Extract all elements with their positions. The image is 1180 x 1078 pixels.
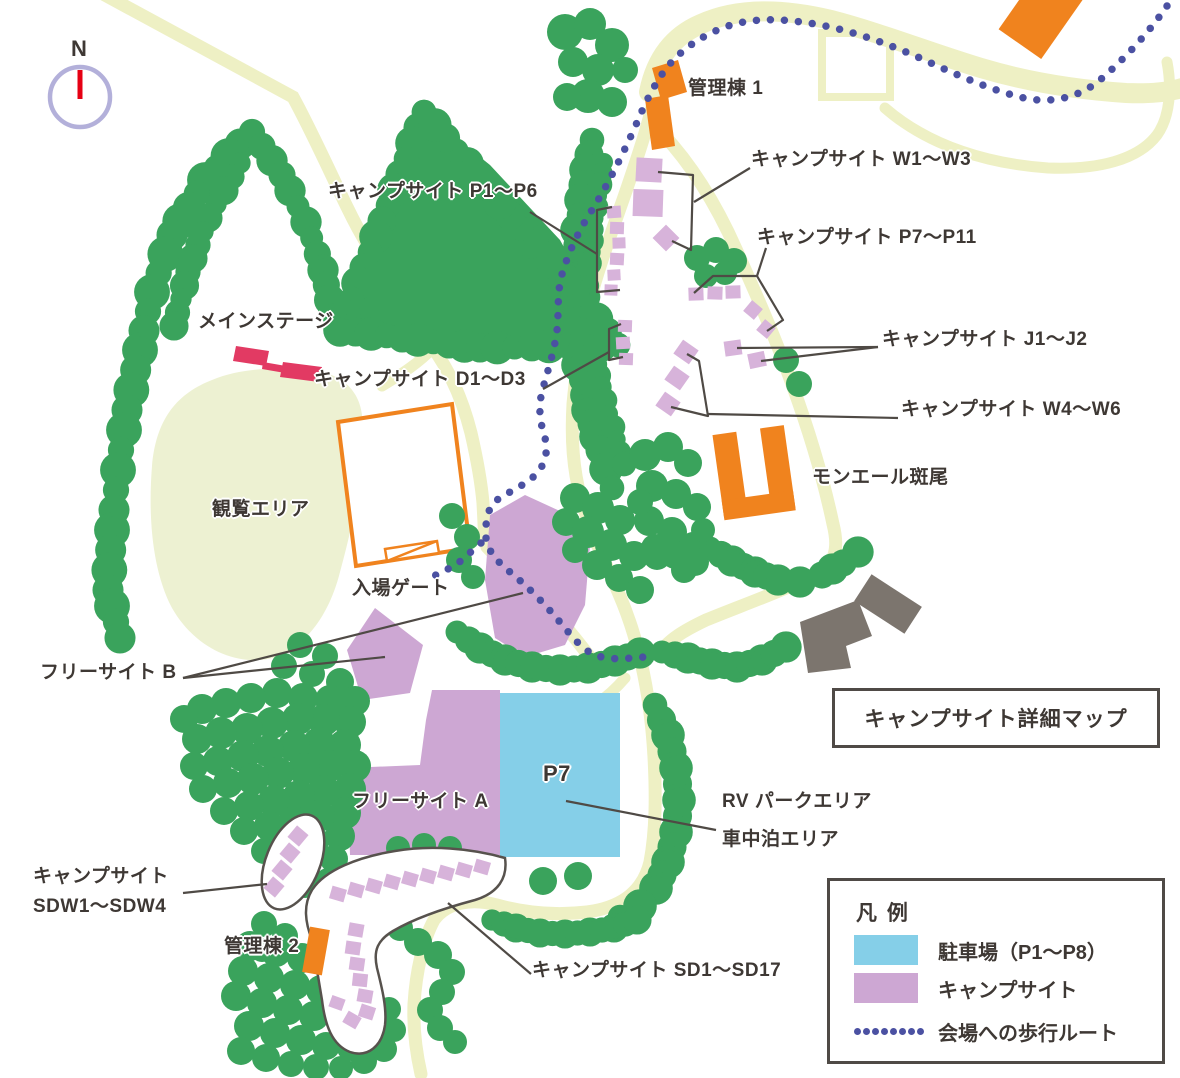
label-car-stay: 車中泊エリア xyxy=(722,829,839,852)
compass xyxy=(50,67,110,127)
label-entrance-gate: 入場ゲート xyxy=(352,578,450,601)
label-p7: P7 xyxy=(543,761,571,787)
label-free-site-b: フリーサイト B xyxy=(40,662,177,685)
label-admin1: 管理棟 1 xyxy=(688,78,763,101)
mon-eir-madarao-building xyxy=(712,425,795,520)
parking-swatch xyxy=(854,935,918,965)
campsite-swatch xyxy=(854,973,918,1003)
legend-parking-label: 駐車場（P1～P8） xyxy=(938,936,1107,965)
label-admin2: 管理棟 2 xyxy=(224,936,299,959)
compass-n-label: N xyxy=(71,36,87,62)
campsite-map: N 管理棟 1 キャンプサイト W1～W3 キャンプサイト P1～P6 キャンプ… xyxy=(0,0,1180,1078)
label-main-stage: メインステージ xyxy=(198,311,334,334)
label-mon-eir: モンエール斑尾 xyxy=(812,467,949,490)
label-site-w1w3: キャンプサイト W1～W3 xyxy=(751,149,971,172)
label-site-w4w6: キャンプサイト W4～W6 xyxy=(901,399,1121,422)
legend-item-parking: 駐車場（P1～P8） xyxy=(854,935,1162,965)
route-dots-icon xyxy=(854,1028,924,1035)
label-site-p1p6: キャンプサイト P1～P6 xyxy=(328,181,538,204)
label-site-d1d3: キャンプサイト D1～D3 xyxy=(314,369,526,392)
label-sdw-line2: SDW1～SDW4 xyxy=(33,896,166,919)
map-title-box: キャンプサイト詳細マップ xyxy=(832,688,1160,748)
event-field xyxy=(338,404,470,566)
label-site-sd: キャンプサイト SD1～SD17 xyxy=(532,960,781,983)
legend-item-route: 会場への歩行ルート xyxy=(854,1017,1162,1046)
building-top-right xyxy=(999,0,1098,59)
map-title: キャンプサイト詳細マップ xyxy=(864,703,1127,733)
legend-campsite-label: キャンプサイト xyxy=(938,974,1077,1003)
label-site-j1j2: キャンプサイト J1～J2 xyxy=(882,329,1087,352)
legend-route-label: 会場への歩行ルート xyxy=(938,1017,1118,1046)
free-site-a-area xyxy=(347,690,500,855)
label-sdw-line1: キャンプサイト xyxy=(33,866,169,889)
label-site-p7p11: キャンプサイト P7～P11 xyxy=(757,227,977,250)
label-rv-park: RV パークエリア xyxy=(722,791,872,814)
legend-item-campsite: キャンプサイト xyxy=(854,973,1162,1003)
gray-building xyxy=(800,574,922,673)
label-free-site-a: フリーサイト A xyxy=(352,791,489,814)
legend: 凡 例 駐車場（P1～P8） キャンプサイト 会場への歩行ルート xyxy=(827,878,1165,1064)
label-viewing-area: 観覧エリア xyxy=(212,499,310,522)
legend-title: 凡 例 xyxy=(856,897,1162,927)
